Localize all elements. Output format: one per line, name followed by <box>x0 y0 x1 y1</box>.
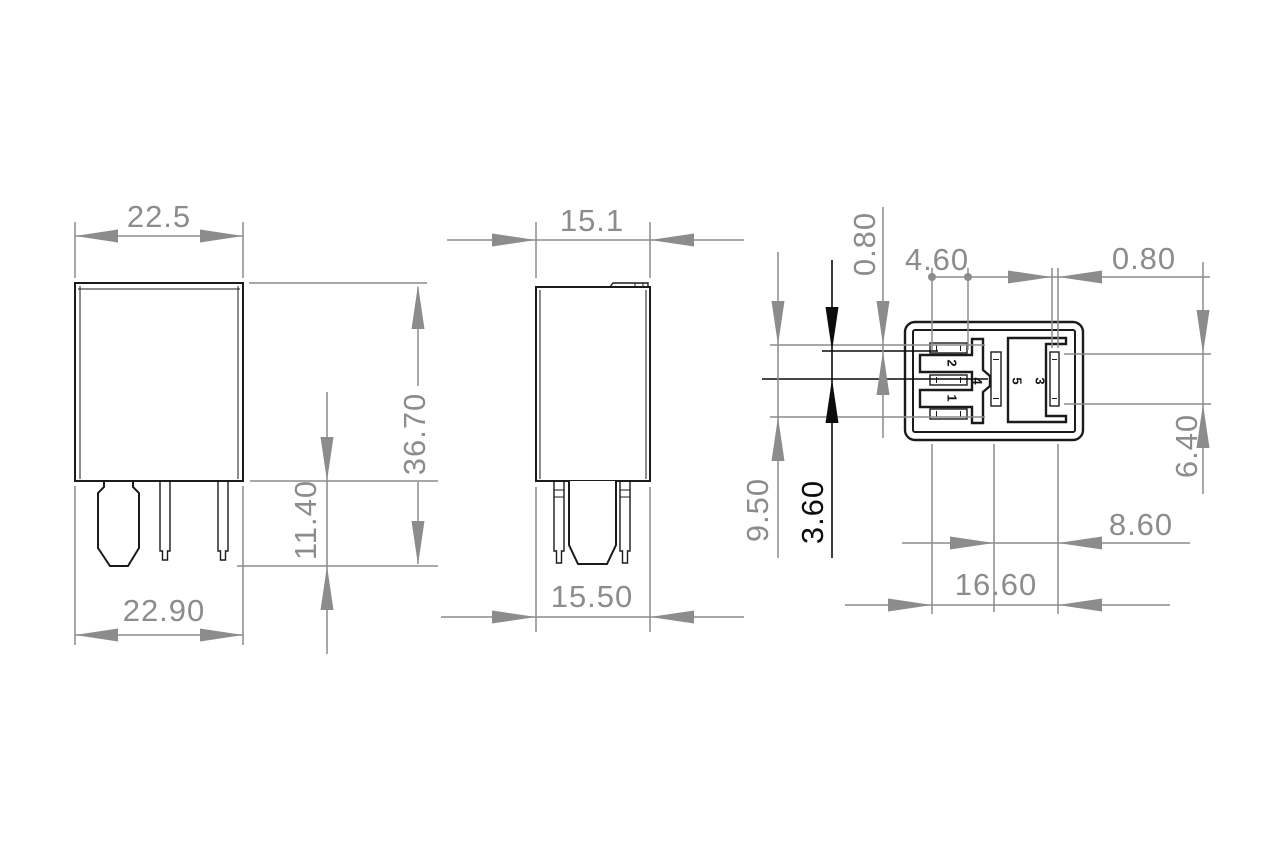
front-view <box>75 283 243 566</box>
dim-label-slot-length: 4.60 <box>905 242 969 277</box>
pin-label-2: 2 <box>944 359 959 366</box>
dim-label-width-bottom-front: 22.90 <box>123 593 206 628</box>
side-view <box>536 283 650 564</box>
dim-label-center-to-blade: 8.60 <box>1109 507 1173 542</box>
pin-label-1: 1 <box>944 394 959 401</box>
wide-blade-pin-side <box>569 481 616 564</box>
dim-front-overall-height: 36.70 <box>237 283 438 566</box>
dim-label-slot-height: 0.80 <box>847 212 882 276</box>
dim-label-rows-span: 9.50 <box>740 478 775 542</box>
dim-bottom-slot-height: 0.80 <box>847 207 890 438</box>
relay-body-front <box>75 283 243 481</box>
dim-side-width-top: 15.1 <box>447 203 744 278</box>
wide-blade-pin-front <box>98 481 139 566</box>
relay-dimension-drawing: 2 1 4 5 3 22.5 36.70 11.40 22.90 <box>0 0 1280 854</box>
dim-label-width-top-front: 22.5 <box>127 199 191 234</box>
thin-pin-front-2 <box>218 481 228 560</box>
pin-label-3: 3 <box>1032 377 1047 384</box>
dim-bottom-row-pitch: 3.60 <box>795 260 839 558</box>
dim-front-width-top: 22.5 <box>75 199 243 278</box>
dim-label-row-pitch: 3.60 <box>795 480 830 544</box>
dim-label-width-top-side: 15.1 <box>560 203 624 238</box>
dim-bottom-center-to-blade: 8.60 <box>902 507 1190 550</box>
dim-label-overall-span: 16.60 <box>955 567 1038 602</box>
dim-label-pin-length: 11.40 <box>288 480 323 560</box>
dim-label-blade-height: 6.40 <box>1169 414 1204 478</box>
dim-label-slot-width: 0.80 <box>1112 241 1176 276</box>
relay-body-side <box>536 287 650 481</box>
dim-bottom-blade-height: 6.40 <box>1064 262 1211 494</box>
thin-pin-front-1 <box>160 481 170 560</box>
technical-drawing-page: 2 1 4 5 3 22.5 36.70 11.40 22.90 <box>0 0 1280 854</box>
thin-pin-side-2 <box>620 481 630 563</box>
dim-label-width-bottom-side: 15.50 <box>551 579 634 614</box>
pin-label-5: 5 <box>1009 377 1024 384</box>
dim-label-overall-height: 36.70 <box>397 393 432 476</box>
dim-bottom-rows-span: 9.50 <box>740 252 785 558</box>
thin-pin-side-1 <box>554 481 564 563</box>
